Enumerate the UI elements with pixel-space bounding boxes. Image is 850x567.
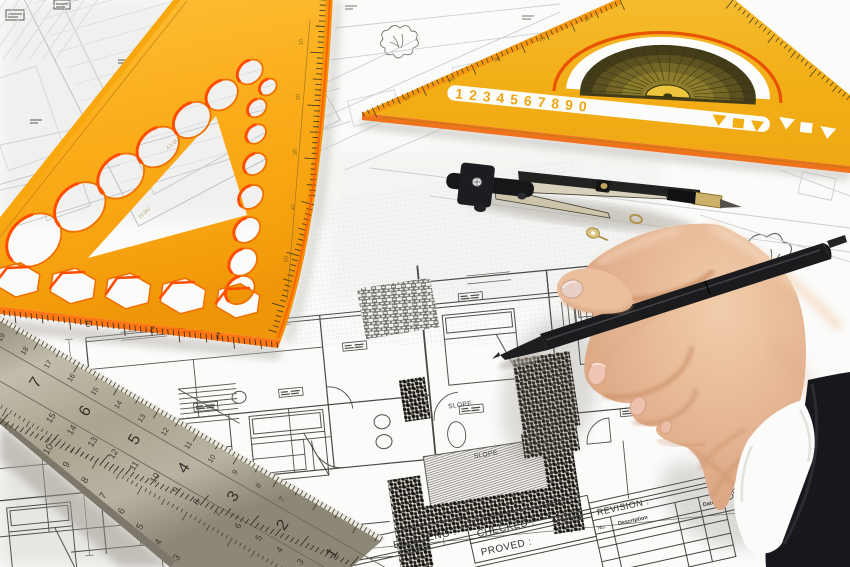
- svg-text:50: 50: [283, 256, 290, 263]
- svg-text:3: 3: [85, 318, 91, 328]
- svg-text:1: 1: [215, 330, 221, 340]
- svg-text:10: 10: [298, 39, 305, 46]
- svg-text:40: 40: [290, 204, 297, 211]
- svg-text:30: 30: [292, 149, 299, 156]
- svg-text:20: 20: [295, 94, 302, 101]
- svg-text:2: 2: [149, 324, 155, 334]
